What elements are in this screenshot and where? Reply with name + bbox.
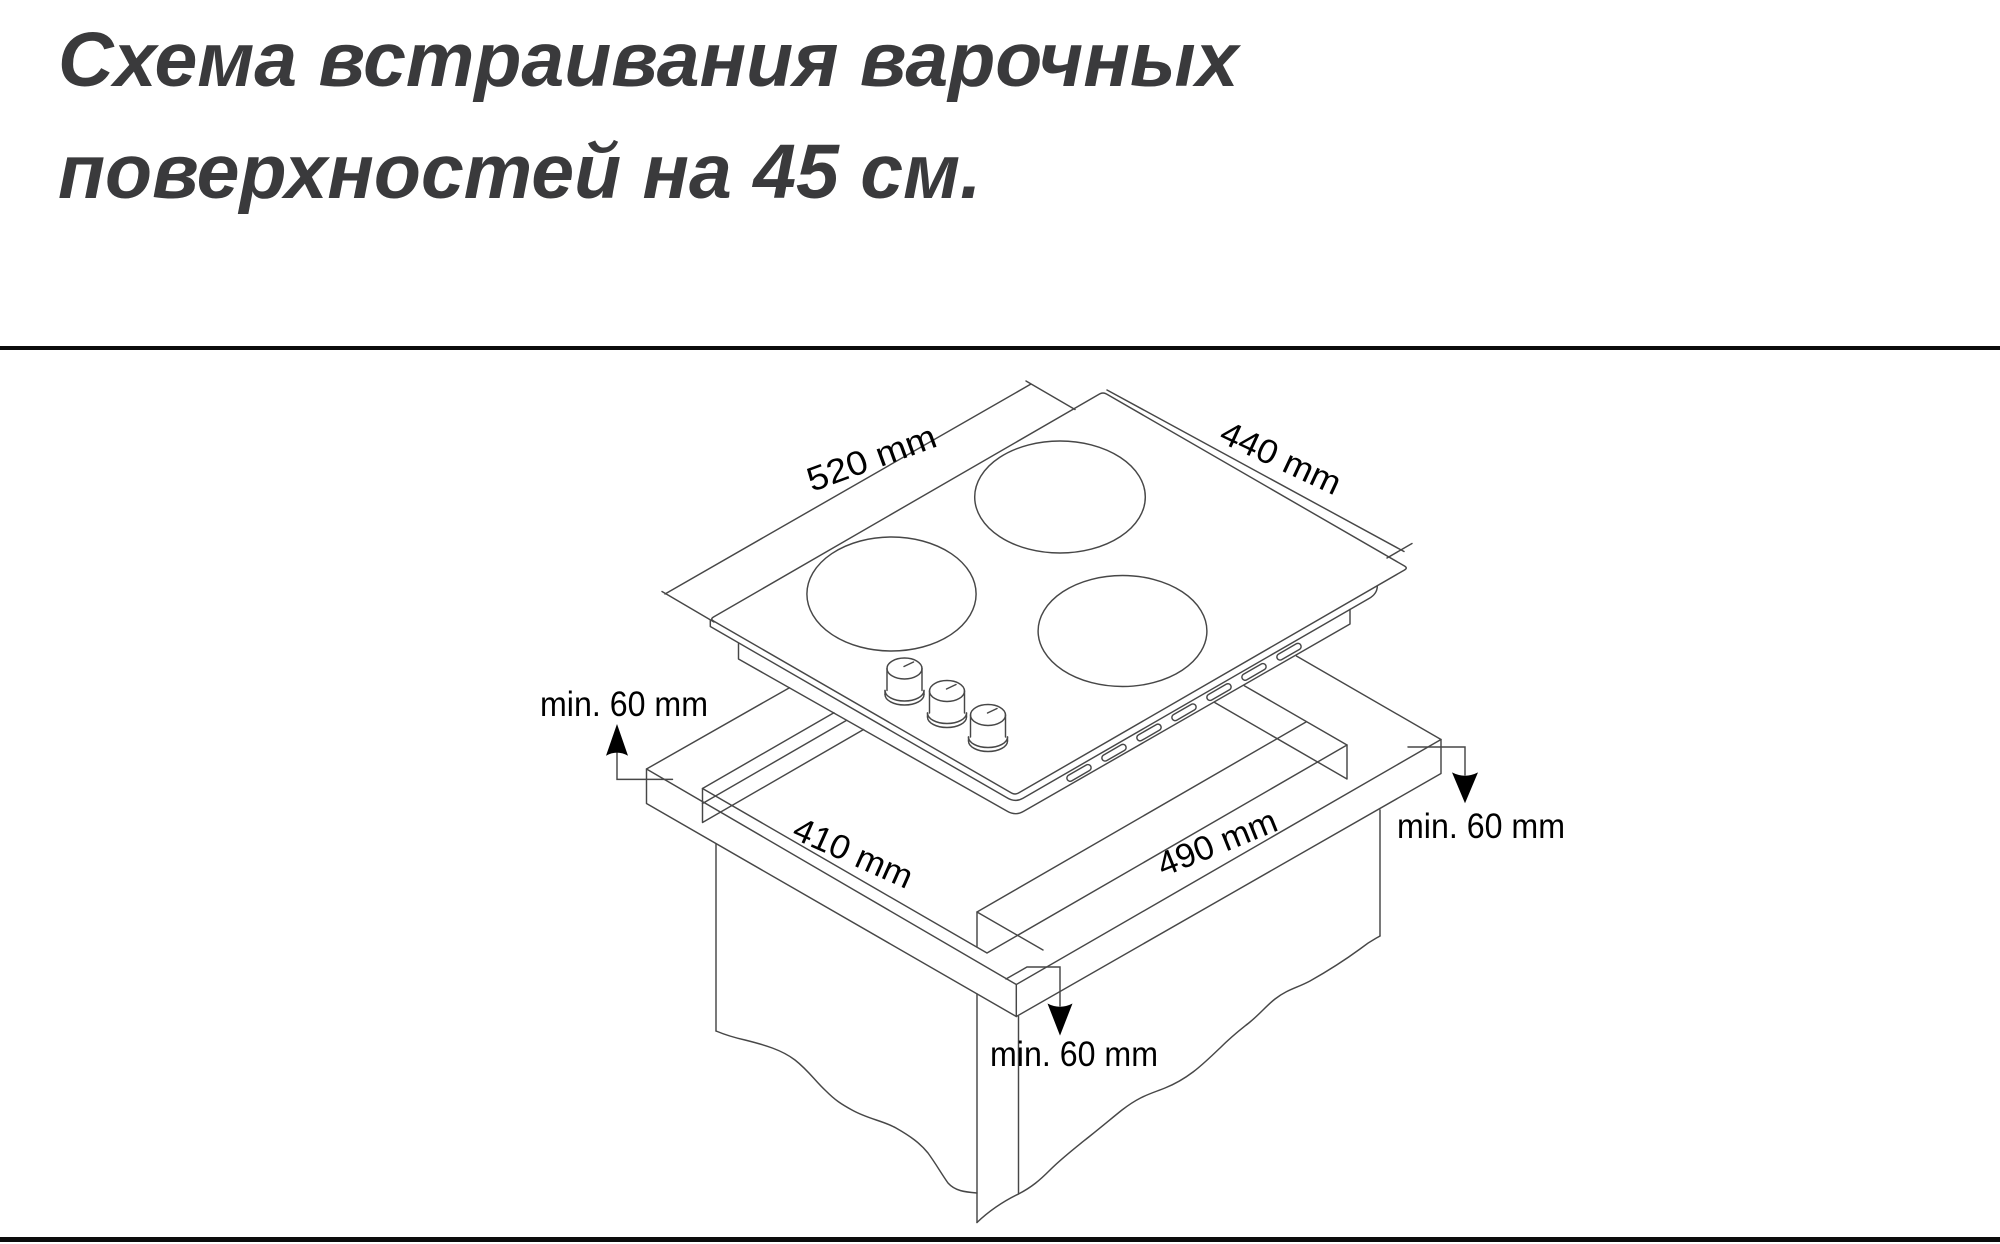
svg-text:min. 60 mm: min. 60 mm — [540, 685, 708, 724]
svg-text:Схема встраивания варочных: Схема встраивания варочных — [58, 17, 1242, 103]
svg-text:min. 60 mm: min. 60 mm — [1397, 807, 1565, 846]
svg-text:min. 60 mm: min. 60 mm — [990, 1035, 1158, 1074]
svg-text:поверхностей на 45 см.: поверхностей на 45 см. — [58, 129, 981, 215]
